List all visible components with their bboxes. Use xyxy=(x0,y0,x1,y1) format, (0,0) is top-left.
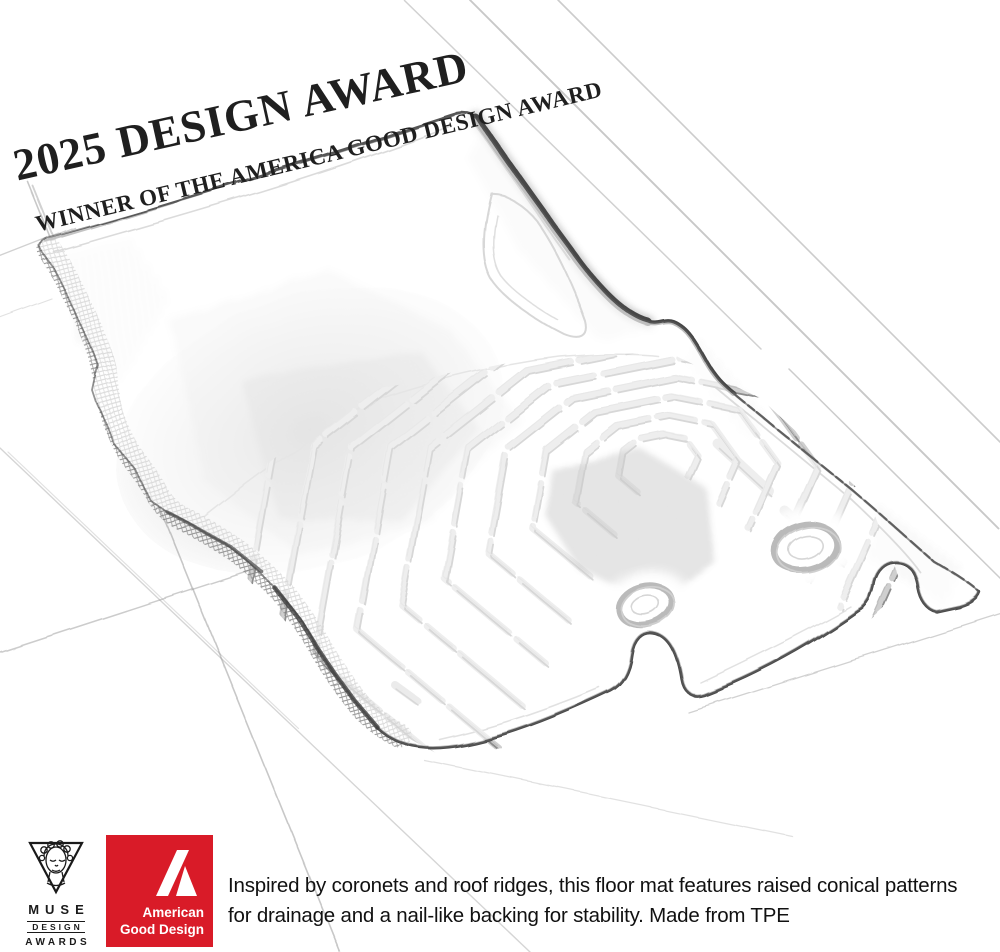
product-caption: Inspired by coronets and roof ridges, th… xyxy=(228,871,958,931)
agd-logo-line1: American xyxy=(142,905,204,920)
agd-logo-line2: Good Design xyxy=(120,922,204,937)
outline-strokes xyxy=(40,113,980,748)
muse-logo-design-label: DESIGN xyxy=(27,921,85,933)
floor-mat xyxy=(40,113,1000,880)
muse-logo-title: MUSE xyxy=(20,902,92,917)
american-good-design-logo: American Good Design xyxy=(106,835,213,947)
muse-logo-awards-label: AWARDS xyxy=(20,937,92,948)
muse-design-awards-logo: MUSE DESIGN AWARDS xyxy=(20,834,92,946)
product-image: 2025 DESIGN AWARD WINNER OF THE AMERICA … xyxy=(0,0,1000,952)
muse-goddess-triangle-icon xyxy=(20,834,92,896)
